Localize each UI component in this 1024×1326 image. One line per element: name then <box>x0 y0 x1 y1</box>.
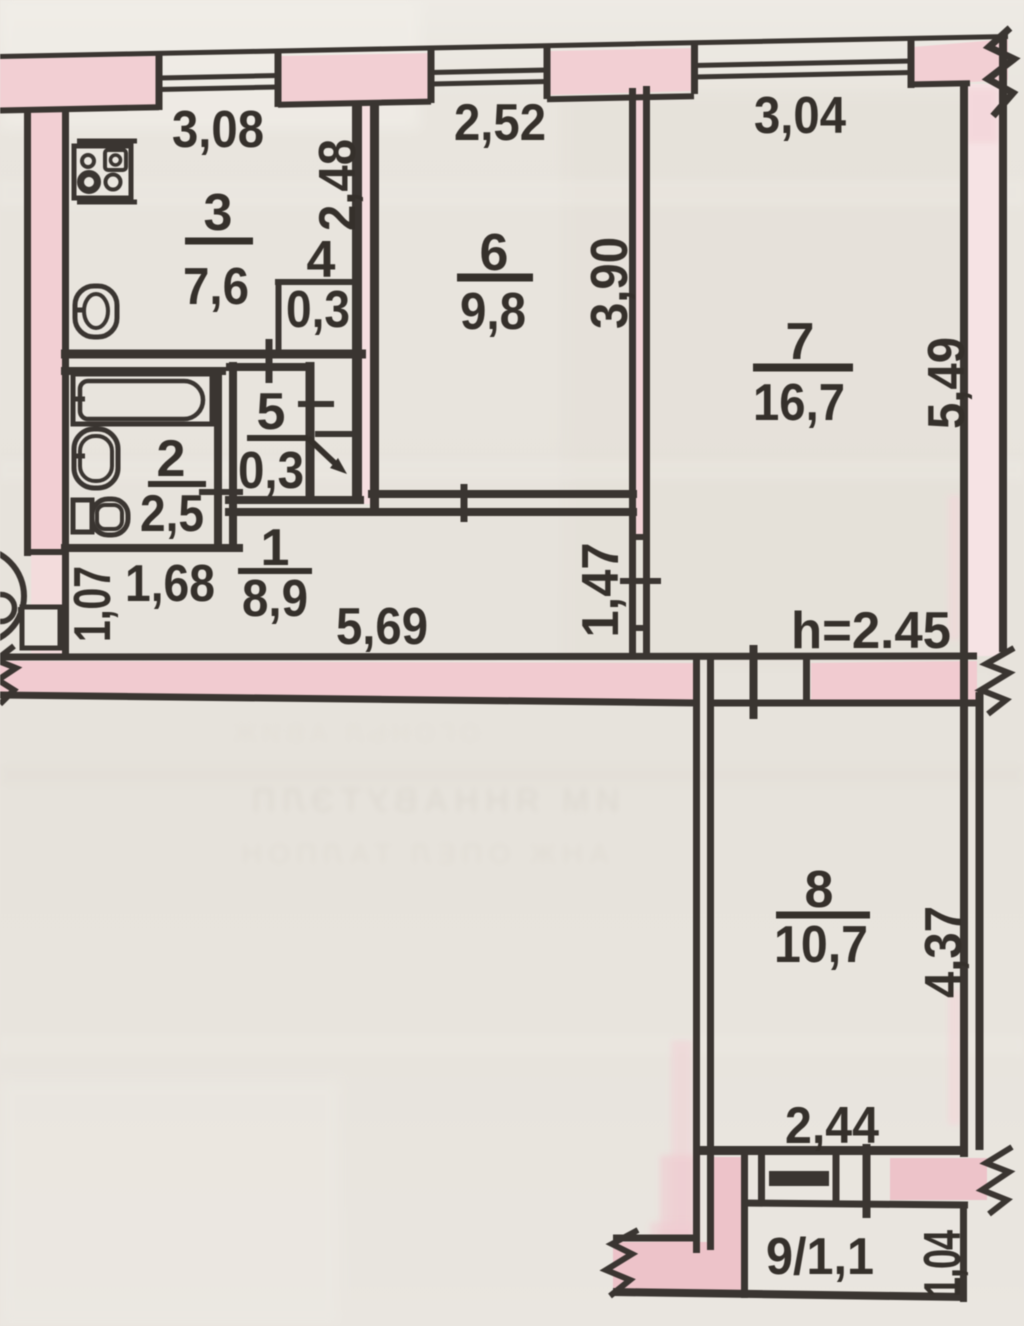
svg-text:8,9: 8,9 <box>242 570 308 628</box>
svg-text:0,3: 0,3 <box>238 442 304 500</box>
svg-text:2: 2 <box>157 430 186 488</box>
svg-text:2,44: 2,44 <box>785 1097 879 1155</box>
svg-text:h=2.45: h=2.45 <box>791 602 951 660</box>
svg-text:1,07: 1,07 <box>64 566 122 642</box>
svg-text:3,08: 3,08 <box>172 101 264 159</box>
svg-text:5: 5 <box>257 383 286 441</box>
svg-text:2,5: 2,5 <box>140 485 204 543</box>
svg-text:8: 8 <box>805 861 834 919</box>
svg-text:0,3: 0,3 <box>286 281 350 339</box>
svg-text:10,7: 10,7 <box>774 916 868 974</box>
svg-text:2,52: 2,52 <box>454 94 546 152</box>
svg-text:5,49: 5,49 <box>918 337 976 429</box>
svg-text:АНЖ ОПЕЛ ТАЛПОН: АНЖ ОПЕЛ ТАЛПОН <box>236 838 610 871</box>
svg-text:6: 6 <box>480 224 509 282</box>
svg-text:5,69: 5,69 <box>336 598 428 656</box>
svg-text:ОГОНЬЛ АВИЖ: ОГОНЬЛ АВИЖ <box>228 718 480 748</box>
svg-text:1,47: 1,47 <box>572 543 630 638</box>
svg-text:ИМ ЯННАВУТЭЛП: ИМ ЯННАВУТЭЛП <box>245 782 620 820</box>
svg-text:7,6: 7,6 <box>183 258 249 316</box>
svg-text:3,04: 3,04 <box>754 87 846 145</box>
svg-text:2,48: 2,48 <box>309 139 367 231</box>
svg-text:7: 7 <box>786 313 815 371</box>
svg-text:1,04: 1,04 <box>914 1230 972 1297</box>
svg-text:3: 3 <box>204 184 233 242</box>
svg-text:9,8: 9,8 <box>460 283 526 341</box>
svg-text:4,37: 4,37 <box>915 906 973 998</box>
svg-text:3,90: 3,90 <box>581 237 639 329</box>
svg-text:1,68: 1,68 <box>125 555 215 613</box>
svg-text:16,7: 16,7 <box>753 374 845 432</box>
svg-text:9/1,1: 9/1,1 <box>766 1228 874 1286</box>
